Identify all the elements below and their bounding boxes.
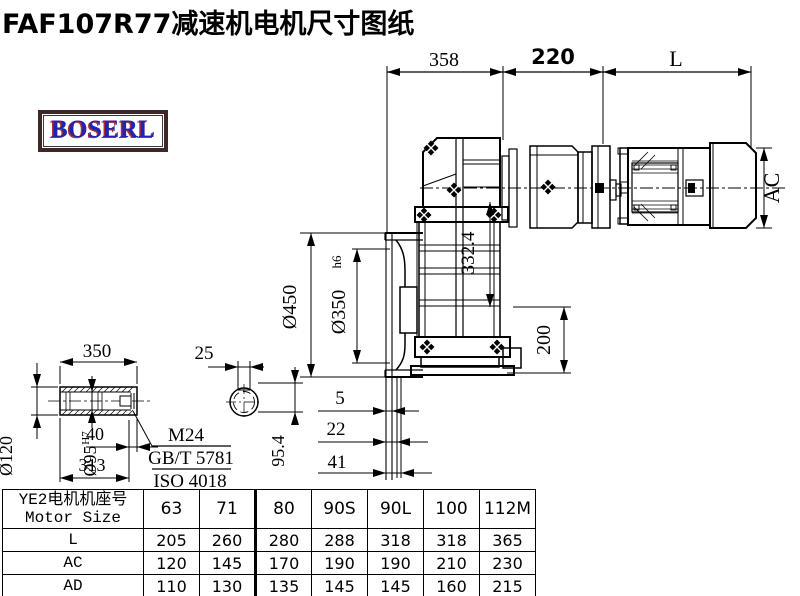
dim-40: 40 [86, 424, 104, 444]
brand-logo: BOSERL [38, 110, 168, 152]
table-row-L: L 205 260 280 288 318 318 365 [3, 529, 536, 552]
table-cell: 120 [144, 552, 200, 575]
dim-5: 5 [335, 388, 345, 409]
table-cell: 170 [256, 552, 312, 575]
column-header: 100 [424, 490, 480, 529]
table-header-label: YE2电机机座号 Motor Size [3, 490, 144, 529]
dim-200: 200 [533, 325, 555, 355]
table-cell: 210 [424, 552, 480, 575]
table-cell: 190 [312, 552, 368, 575]
table-cell: 318 [368, 529, 424, 552]
table-cell: 130 [200, 575, 256, 596]
column-header: 71 [200, 490, 256, 529]
row-label: AC [3, 552, 144, 575]
dim-220: 220 [531, 45, 575, 69]
table-cell: 145 [200, 552, 256, 575]
dim-358: 358 [429, 49, 459, 71]
dim-25: 25 [195, 343, 214, 364]
table-row-AC: AC 120 145 170 190 190 210 230 [3, 552, 536, 575]
table-cell: 190 [368, 552, 424, 575]
row-label: L [3, 529, 144, 552]
shaft-end-view [208, 361, 303, 424]
table-cell: 215 [480, 575, 536, 596]
table-cell: 110 [144, 575, 200, 596]
thread-callout: M24 [168, 425, 204, 446]
table-cell: 288 [312, 529, 368, 552]
table-cell: 135 [256, 575, 312, 596]
output-flange [385, 222, 423, 480]
dim-AC: AC [759, 173, 784, 204]
column-header: 90S [312, 490, 368, 529]
header-cn: YE2电机机座号 [3, 491, 143, 509]
motor-size-table: YE2电机机座号 Motor Size 63 71 80 90S 90L 100… [2, 489, 536, 596]
column-header: 63 [144, 490, 200, 529]
table-cell: 160 [424, 575, 480, 596]
thread-std1: GB/T 5781 [148, 448, 234, 469]
table-cell: 230 [480, 552, 536, 575]
drawing-sheet: 358 220 L Ø450 Ø350 h6 332.4 200 AC 5 22… [0, 0, 800, 596]
table-header-row: YE2电机机座号 Motor Size 63 71 80 90S 90L 100… [3, 490, 536, 529]
dim-spigot: Ø350 [328, 290, 350, 334]
dim-flange-od: Ø450 [279, 285, 301, 329]
dim-41: 41 [328, 452, 347, 473]
column-header: 90L [368, 490, 424, 529]
input-adapter [502, 146, 621, 228]
dim-od120: Ø120 [0, 436, 16, 476]
dim-350: 350 [83, 341, 112, 362]
header-en: Motor Size [3, 509, 143, 527]
dim-center-height: 332.4 [458, 231, 479, 274]
page-title: FAF107R77减速机电机尺寸图纸 [2, 2, 414, 41]
column-header: 80 [256, 490, 312, 529]
table-row-AD: AD 110 130 135 145 145 160 215 [3, 575, 536, 596]
table-cell: 145 [368, 575, 424, 596]
table-cell: 205 [144, 529, 200, 552]
table-cell: 318 [424, 529, 480, 552]
dim-L: L [669, 46, 682, 71]
fan-cowl [710, 143, 756, 228]
table-cell: 280 [256, 529, 312, 552]
table-cell: 365 [480, 529, 536, 552]
dim-95-4: 95.4 [268, 435, 288, 467]
row-label: AD [3, 575, 144, 596]
brand-logo-frame: BOSERL [43, 115, 163, 147]
column-header: 112M [480, 490, 536, 529]
dim-22: 22 [327, 419, 346, 440]
dim-spigot-tol: h6 [329, 255, 344, 269]
brand-logo-text: BOSERL [51, 116, 155, 143]
table-cell: 145 [312, 575, 368, 596]
dim-313: 313 [79, 455, 106, 475]
motor [618, 143, 756, 228]
table-cell: 260 [200, 529, 256, 552]
